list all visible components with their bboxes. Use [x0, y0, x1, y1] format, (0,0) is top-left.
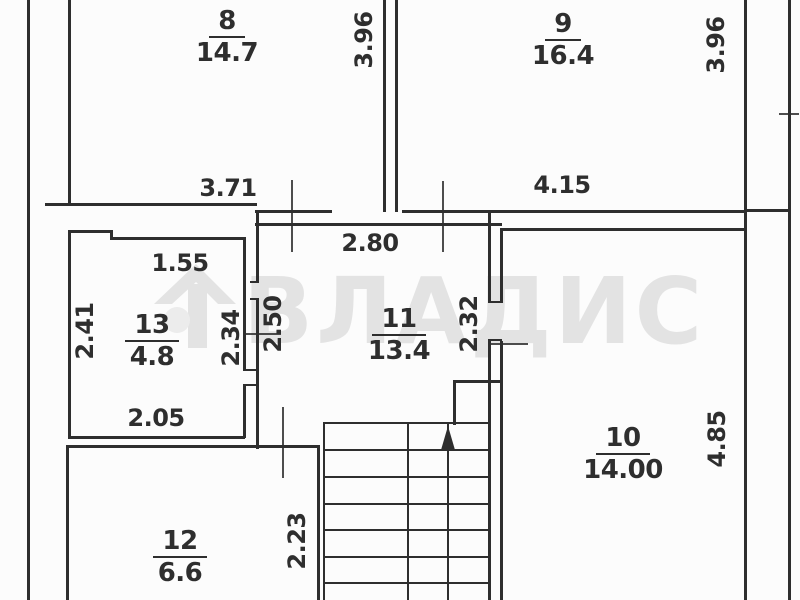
door-jamb-room11-top: [250, 281, 259, 283]
wall-stair-jog-vertical: [453, 380, 456, 425]
room-9-area: 16.4: [513, 41, 613, 70]
dim-room8-height: 3.96: [351, 0, 377, 90]
room-12-label: 12 6.6: [130, 528, 230, 588]
wall-room10-left-b-upper: [500, 230, 503, 303]
wall-room12-left: [66, 445, 69, 600]
room-8-label: 8 14.7: [177, 8, 277, 68]
dimension-tick: [282, 407, 284, 478]
door-jamb-room11-bottom: [250, 298, 259, 300]
wall-stair-jog-horizontal: [453, 380, 501, 383]
dimension-tick: [442, 181, 444, 252]
wall-room13-top-b: [110, 237, 245, 240]
wall-room8-bottom-stub: [45, 203, 70, 206]
wall-outer-left: [27, 0, 30, 600]
dim-room9-height: 3.96: [703, 0, 729, 95]
room-9-number: 9: [545, 11, 581, 41]
wall-band-top-right: [402, 210, 746, 213]
window-tick-right: [779, 113, 799, 115]
wall-room13-bottom: [68, 436, 245, 439]
dim-room11-width: 2.80: [320, 230, 420, 256]
wall-room9-10-right: [744, 0, 747, 600]
stairs-step: [323, 529, 488, 531]
room-11-area: 13.4: [349, 336, 449, 365]
room-13-number: 13: [125, 312, 178, 342]
door-jamb-room10-top: [488, 301, 502, 303]
room-11-number: 11: [372, 306, 425, 336]
wall-room11-left-upper: [256, 210, 259, 283]
room-10-number: 10: [596, 425, 649, 455]
stairs-step: [323, 556, 488, 558]
room-13-area: 4.8: [102, 342, 202, 371]
wall-room12-right: [317, 445, 320, 600]
wall-room13-right-lower: [243, 385, 246, 438]
floor-plan-scan: ВЛАДИС: [0, 0, 800, 600]
room-9-label: 9 16.4: [513, 11, 613, 71]
dim-room13-height: 2.41: [72, 281, 98, 381]
dim-room11-left-height: 2.50: [260, 274, 286, 374]
stairs-step: [323, 582, 488, 584]
dim-room8-width: 3.71: [178, 175, 278, 201]
wall-band-top-left: [255, 210, 332, 213]
room-8-area: 14.7: [177, 38, 277, 67]
wall-connector-right: [745, 209, 790, 212]
stairs-step: [323, 503, 488, 505]
dim-room13-bottom-width: 2.05: [106, 405, 206, 431]
wall-room8-left: [68, 0, 71, 206]
wall-room8-9-divider-a: [383, 0, 386, 212]
room-11-label: 11 13.4: [349, 306, 449, 366]
stairs-up-arrow-icon: [441, 426, 455, 450]
wall-room8-bottom: [68, 203, 257, 206]
dimension-tick: [291, 180, 293, 252]
stairs-divider: [407, 422, 409, 600]
room-10-label: 10 14.00: [573, 425, 673, 485]
dim-room9-width: 4.15: [512, 172, 612, 198]
wall-room10-top: [500, 228, 746, 231]
room-8-number: 8: [209, 8, 245, 38]
room-13-label: 13 4.8: [102, 312, 202, 372]
wall-room10-left-a-upper: [488, 210, 491, 303]
wall-room8-9-divider-b: [395, 0, 398, 212]
dim-room13-right-height: 2.34: [218, 288, 244, 388]
stairs-step: [323, 422, 488, 424]
wall-room13-top-a: [68, 230, 112, 233]
room-10-area: 14.00: [573, 455, 673, 484]
dim-room10-height: 4.85: [704, 389, 730, 489]
dimension-tick: [488, 343, 528, 345]
stairs-step: [323, 476, 488, 478]
room-12-area: 6.6: [130, 558, 230, 587]
dim-room11-right-height: 2.32: [456, 274, 482, 374]
dim-stair-hall-height: 2.23: [284, 491, 310, 591]
room-12-number: 12: [153, 528, 206, 558]
stairs-step: [323, 449, 488, 451]
wall-outer-right: [788, 0, 791, 600]
door-jamb-room10-bottom: [488, 339, 502, 341]
dim-room13-top-width: 1.55: [130, 250, 230, 276]
